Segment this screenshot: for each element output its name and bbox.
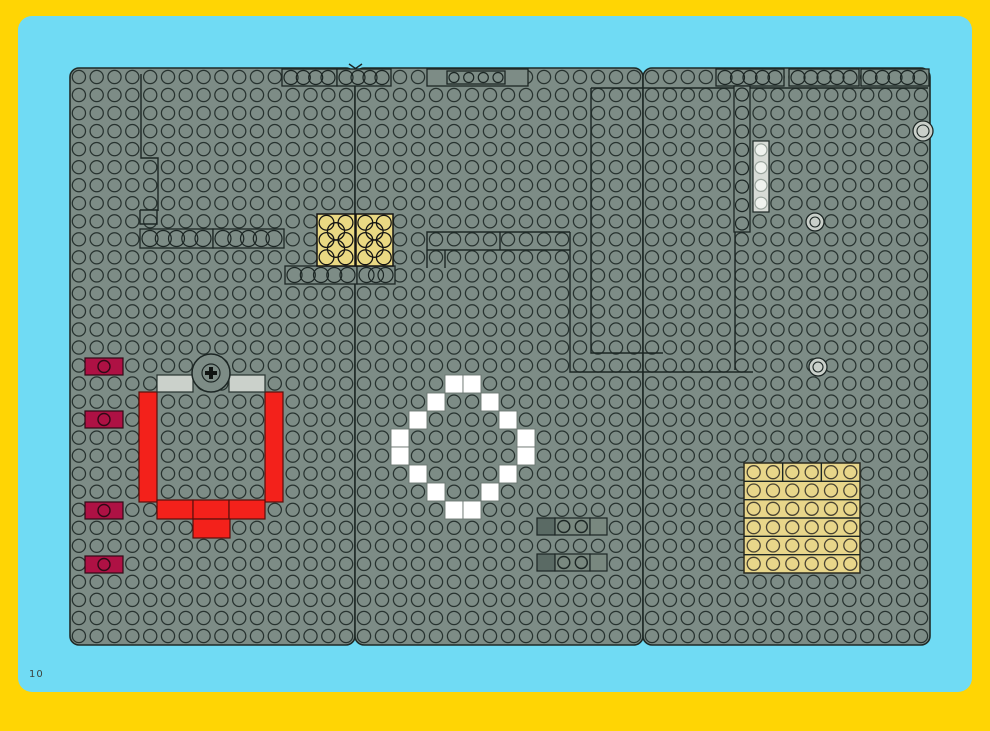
plate-top-b bbox=[337, 69, 391, 86]
flat-tile-1x1-b bbox=[590, 554, 607, 571]
white-tile-1x1-10 bbox=[517, 447, 535, 465]
plate-top-d bbox=[716, 69, 784, 86]
white-tile-1x1-4 bbox=[481, 393, 499, 411]
white-tile-1x1-3 bbox=[427, 393, 445, 411]
plate-under-yellow-a bbox=[285, 266, 357, 284]
instruction-page: 10 bbox=[0, 0, 990, 727]
baseplate-canvas bbox=[0, 0, 990, 727]
red-brick-bottom-tab bbox=[193, 519, 230, 538]
white-tile-1x1-8 bbox=[517, 429, 535, 447]
white-tile-1x1-2 bbox=[463, 375, 481, 393]
lightgray-plate-1x4-vertical-stud bbox=[755, 197, 767, 209]
white-tile-1x1-6 bbox=[499, 411, 517, 429]
plate-1x2-a bbox=[555, 518, 590, 535]
round-plate-c bbox=[809, 358, 827, 376]
turntable-2x2-axle-v bbox=[209, 367, 213, 379]
white-tile-1x1-13 bbox=[427, 483, 445, 501]
red-brick-bottom-a bbox=[157, 500, 193, 519]
dark-tile-1x1-a bbox=[537, 518, 555, 535]
plate-1x4-b bbox=[213, 229, 284, 248]
plate-top-f bbox=[861, 69, 929, 86]
red-brick-bottom-c bbox=[229, 500, 265, 519]
red-brick-right-1x6 bbox=[265, 392, 283, 502]
lightgray-plate-1x4-vertical-stud bbox=[755, 162, 767, 174]
plate-top-e bbox=[789, 69, 859, 86]
gray-tile-1x2-a bbox=[157, 375, 193, 392]
white-tile-1x1-14 bbox=[481, 483, 499, 501]
lightgray-plate-1x4-vertical-stud bbox=[755, 144, 767, 156]
page-number: 10 bbox=[29, 669, 44, 680]
white-tile-1x1-11 bbox=[409, 465, 427, 483]
lightgray-plate-1x4-vertical-stud bbox=[755, 179, 767, 191]
gray-tile-1x2-b bbox=[229, 375, 265, 392]
white-tile-1x1-15 bbox=[445, 501, 463, 519]
white-tile-1x1-9 bbox=[391, 447, 409, 465]
round-plate-b bbox=[806, 213, 824, 231]
red-brick-left-1x6 bbox=[139, 392, 157, 502]
flat-tile-1x1-a bbox=[590, 518, 607, 535]
white-tile-1x1-12 bbox=[499, 465, 517, 483]
white-tile-1x1-7 bbox=[391, 429, 409, 447]
round-plate-a bbox=[913, 121, 933, 141]
plate-top-a bbox=[282, 69, 337, 86]
plate-1x8-vertical bbox=[734, 86, 750, 232]
plate-1x2-b bbox=[555, 554, 590, 571]
white-tile-1x1-5 bbox=[409, 411, 427, 429]
dark-tile-1x1-b bbox=[537, 554, 555, 571]
plate-1x4-a bbox=[140, 229, 213, 248]
white-tile-1x1-1 bbox=[445, 375, 463, 393]
white-tile-1x1-16 bbox=[463, 501, 481, 519]
red-brick-bottom-b bbox=[193, 500, 229, 519]
